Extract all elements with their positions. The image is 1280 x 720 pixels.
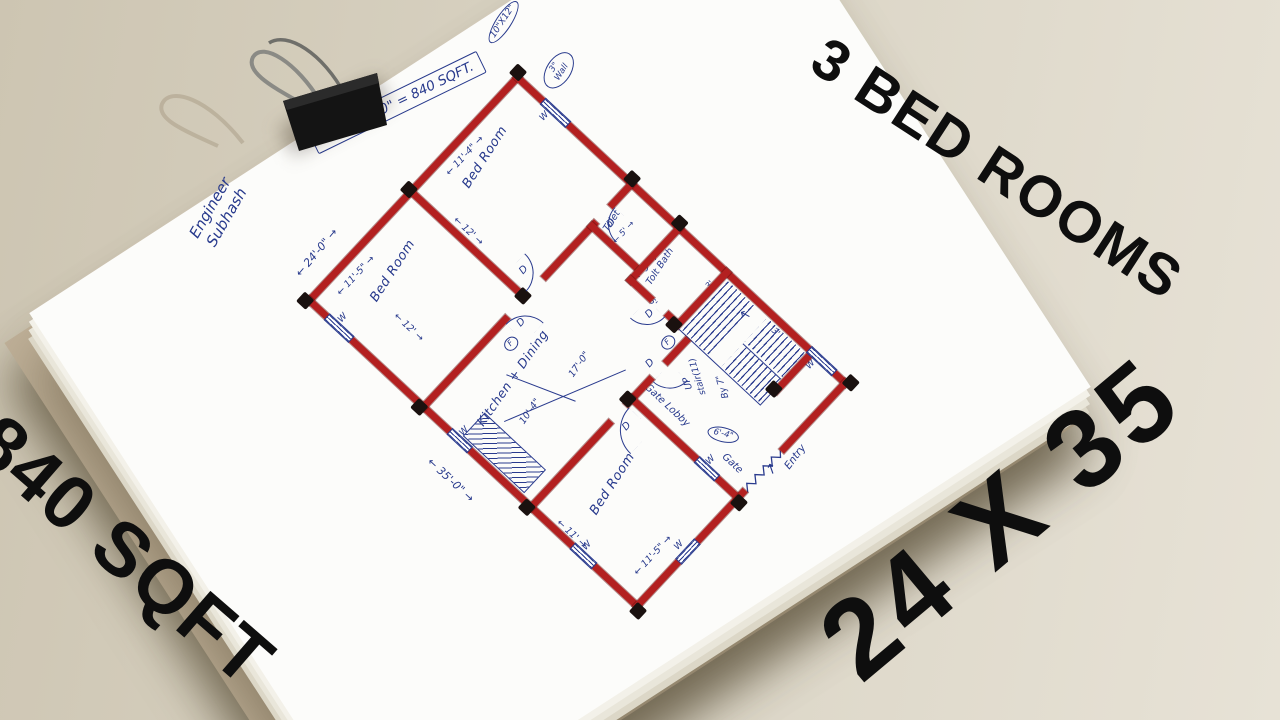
dim-bed2-height: ← 12' → [391,312,425,345]
wall-thickness-note: 3" Wall [537,47,579,94]
door-label-lobby: D [643,357,656,370]
dim-overall-height: ← 35'-0" → [425,456,476,505]
column-marker [842,374,860,392]
wall-segment [714,475,738,498]
room-label-bedroom-top-left: Bed Room [368,238,419,305]
fan-symbol-kitchen: F [501,334,520,353]
room-label-bedroom-bottom: Bed Room [588,451,639,518]
clip-wire-shadow [148,58,278,168]
wall-segment [779,378,850,454]
thumbnail-photo: 24' X 35'-0" = 840 SQFT. Engineer Subhas… [0,0,1280,720]
wall-segment [406,187,525,299]
door-swing-arc [630,300,665,335]
gate-zigzag-icon [741,448,785,494]
stair-width-circle: 6'-4" [706,424,741,446]
dim-kitchen-width: 17'-0" [567,350,592,379]
author-signature: Engineer Subhash [186,174,252,251]
column-size-note: 10"X12" [484,0,524,47]
dim-kitchen-depth: 10'-4" [518,397,543,426]
gate-label: Gate [720,451,745,475]
entry-arrow: ↑ [764,461,780,479]
kitchen-dim-line-short [506,374,576,402]
